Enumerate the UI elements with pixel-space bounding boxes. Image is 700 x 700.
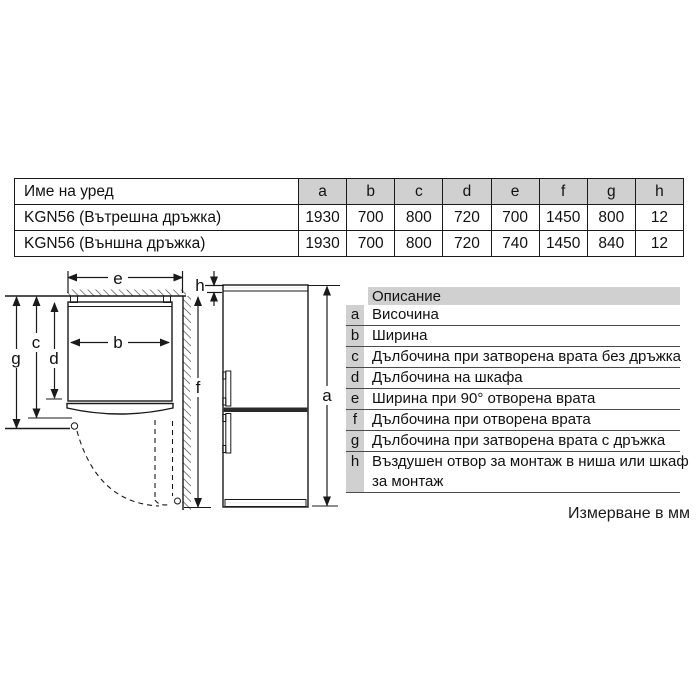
col-header-g: g xyxy=(587,179,635,205)
dim-a: a xyxy=(308,286,340,507)
value-cell: 1450 xyxy=(539,205,587,231)
legend-text: Ширина xyxy=(368,326,680,346)
legend-letter: a xyxy=(346,305,364,325)
dim-b: b xyxy=(71,333,169,352)
value-cell: 740 xyxy=(491,231,539,257)
dim-label-c: c xyxy=(32,333,41,352)
value-cell: 12 xyxy=(635,205,683,231)
col-header-f: f xyxy=(539,179,587,205)
dim-label-e: e xyxy=(113,269,122,288)
dim-label-g: g xyxy=(11,349,20,368)
value-cell: 800 xyxy=(395,231,443,257)
col-header-a: a xyxy=(299,179,347,205)
dim-label-d: d xyxy=(49,349,58,368)
legend-text: Дълбочина на шкафа xyxy=(368,368,680,388)
dim-label-f: f xyxy=(196,378,201,397)
value-cell: 840 xyxy=(587,231,635,257)
dim-h: h xyxy=(195,271,224,306)
legend-text: Въздушен отвор за монтаж в ниша или шкаф… xyxy=(368,452,689,492)
value-cell: 800 xyxy=(587,205,635,231)
legend-text: Дълбочина при затворена врата без дръжка xyxy=(368,347,681,367)
door-swing xyxy=(77,420,181,506)
col-header-c: c xyxy=(395,179,443,205)
device-name: KGN56 (Външна дръжка) xyxy=(15,231,299,257)
legend-row: g Дълбочина при затворена врата с дръжка xyxy=(346,431,680,452)
door-top-view xyxy=(67,404,173,415)
value-cell: 700 xyxy=(347,231,395,257)
fridge-top-view xyxy=(67,296,173,429)
legend-letter: b xyxy=(346,326,364,346)
door-divider xyxy=(224,408,308,413)
legend-letter: c xyxy=(346,347,364,367)
legend-header-row: Описание xyxy=(346,287,680,305)
legend-letter: e xyxy=(346,389,364,409)
value-cell: 12 xyxy=(635,231,683,257)
door-hinge xyxy=(175,498,181,504)
value-cell: 700 xyxy=(347,205,395,231)
door-handle-top-view xyxy=(71,423,77,429)
legend-row: d Дълбочина на шкафа xyxy=(346,368,680,389)
legend-letter: f xyxy=(346,410,364,430)
value-cell: 800 xyxy=(395,205,443,231)
device-name-header: Име на уред xyxy=(15,179,299,205)
wall-hatching xyxy=(5,290,191,511)
col-header-e: e xyxy=(491,179,539,205)
table-row: KGN56 (Външна дръжка) 1930 700 800 720 7… xyxy=(15,231,684,257)
legend-header: Описание xyxy=(368,287,680,305)
value-cell: 1450 xyxy=(539,231,587,257)
legend-letter: g xyxy=(346,431,364,451)
dimensions-table: Име на уред a b c d e f g h KGN56 (Вътре… xyxy=(14,178,684,257)
dim-label-b: b xyxy=(113,333,122,352)
dim-label-h: h xyxy=(195,276,204,295)
measurement-unit-note: Измерване в мм xyxy=(568,505,690,523)
value-cell: 720 xyxy=(443,205,491,231)
legend-row: a Височина xyxy=(346,305,680,326)
value-cell: 700 xyxy=(491,205,539,231)
legend-row: c Дълбочина при затворена врата без дръж… xyxy=(346,347,680,368)
legend-letter: h xyxy=(346,452,364,492)
fridge-front-view xyxy=(223,285,308,507)
legend-text: Ширина при 90° отворена врата xyxy=(368,389,680,409)
legend-letter: d xyxy=(346,368,364,388)
legend-header-spacer xyxy=(346,287,364,305)
dim-d: d xyxy=(46,303,63,399)
col-header-b: b xyxy=(347,179,395,205)
legend-text: Дълбочина при отворена врата xyxy=(368,410,680,430)
freezer-door-handle xyxy=(223,414,231,454)
value-cell: 1930 xyxy=(299,231,347,257)
legend-text: Височина xyxy=(368,305,680,325)
device-name: KGN56 (Вътрешна дръжка) xyxy=(15,205,299,231)
legend-row: e Ширина при 90° отворена врата xyxy=(346,389,680,410)
legend-row: b Ширина xyxy=(346,326,680,347)
table-row: KGN56 (Вътрешна дръжка) 1930 700 800 720… xyxy=(15,205,684,231)
col-header-h: h xyxy=(635,179,683,205)
legend-text: Дълбочина при затворена врата с дръжка xyxy=(368,431,680,451)
legend-row: h Въздушен отвор за монтаж в ниша или шк… xyxy=(346,452,680,493)
dim-label-a: a xyxy=(322,386,332,405)
value-cell: 720 xyxy=(443,231,491,257)
installation-drawing: e h b g c d f xyxy=(0,265,345,520)
table-header-row: Име на уред a b c d e f g h xyxy=(15,179,684,205)
col-header-d: d xyxy=(443,179,491,205)
legend-table: Описание a Височина b Ширина c Дълбочина… xyxy=(346,287,680,493)
dim-e: e xyxy=(68,268,183,293)
fridge-door-handle xyxy=(223,371,231,406)
value-cell: 1930 xyxy=(299,205,347,231)
legend-row: f Дълбочина при отворена врата xyxy=(346,410,680,431)
